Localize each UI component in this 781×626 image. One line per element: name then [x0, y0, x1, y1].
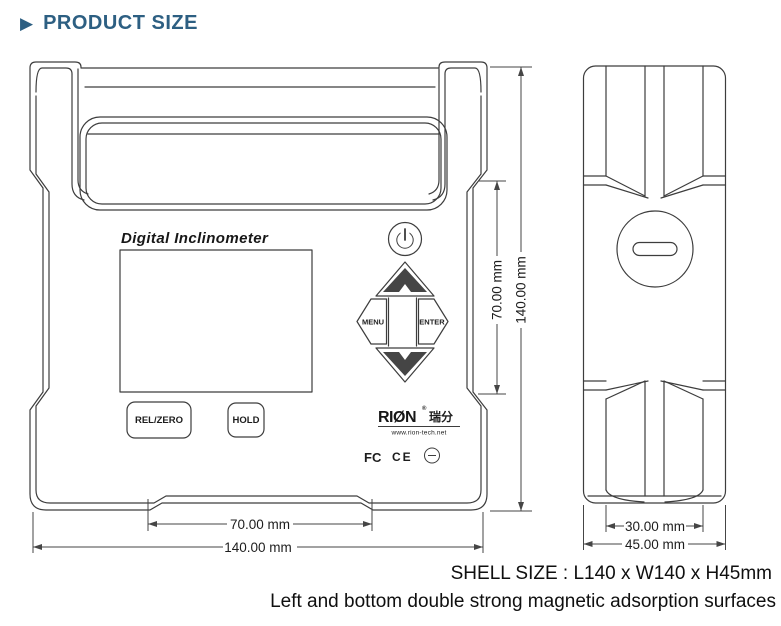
front-ear-right-inner: [445, 68, 481, 92]
dimensions: 70.00 mm 140.00 mm 70.00 mm 140.: [33, 67, 726, 555]
front-handle-opening-outer: [80, 117, 447, 210]
fcc-mark: FC: [364, 450, 382, 465]
side-view: [584, 66, 726, 503]
side-screw-circle: [617, 211, 693, 287]
hold-button-label: HOLD: [233, 415, 260, 426]
dim-front-height-outer: 140.00 mm: [514, 256, 529, 324]
dim-front-width-inner: 70.00 mm: [230, 517, 290, 532]
front-handle-opening-inner: [86, 123, 441, 204]
side-screw-slot: [633, 243, 677, 256]
rion-logo: RIØN: [378, 409, 416, 426]
rion-logo-cn: 瑞分: [429, 409, 453, 424]
rion-logo-block: RIØN ® 瑞分 www.rion-tech.net FC CE: [364, 405, 460, 465]
power-button: [389, 223, 422, 256]
website-url: www.rion-tech.net: [390, 430, 446, 437]
ce-mark: CE: [392, 450, 413, 464]
front-ear-left-inner: [36, 68, 72, 92]
brand-label: Digital Inclinometer: [121, 230, 269, 247]
product-size-page: ▶ PRODUCT SIZE Digital Inclinometer: [0, 0, 781, 626]
dim-side-width-outer: 45.00 mm: [625, 537, 685, 552]
magnetic-note-text: Left and bottom double strong magnetic a…: [270, 591, 776, 612]
lcd-screen: [120, 250, 312, 392]
front-body-inner-contour: [36, 96, 481, 503]
menu-button-label: MENU: [362, 318, 384, 327]
product-size-diagram: Digital Inclinometer MENU ENTER: [0, 0, 781, 626]
shell-size-text: SHELL SIZE : L140 x W140 x H45mm: [451, 563, 772, 584]
nav-cluster: MENU ENTER: [357, 262, 448, 382]
dim-front-height-inner: 70.00 mm: [490, 260, 505, 320]
registered-mark: ®: [422, 405, 427, 412]
front-view: Digital Inclinometer MENU ENTER: [30, 62, 487, 510]
rel-zero-button-label: REL/ZERO: [135, 415, 183, 426]
side-body-outline: [584, 66, 726, 503]
enter-button-label: ENTER: [419, 318, 445, 327]
front-handle-post-right2: [429, 69, 439, 194]
dim-side-width-inner: 30.00 mm: [625, 519, 685, 534]
dim-front-width-outer: 140.00 mm: [224, 540, 292, 555]
rohs-mark-icon: [425, 448, 440, 463]
